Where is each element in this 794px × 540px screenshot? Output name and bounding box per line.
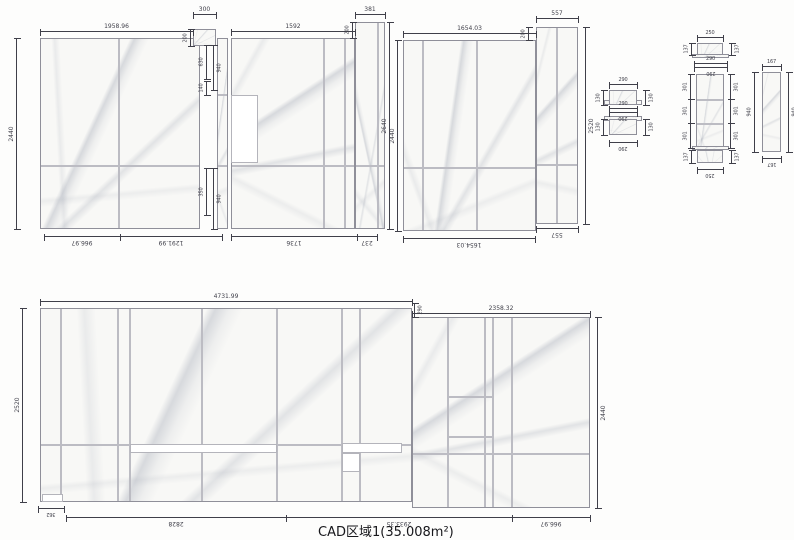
dim-panel3-strip-width: 557 (536, 18, 578, 19)
dim-detailB-flange-width1: 290 (694, 63, 727, 64)
detailB-column[interactable] (696, 74, 724, 148)
dim-detailB-seg-r2: 301 (730, 99, 731, 123)
dim-label: 2440 (9, 126, 15, 141)
dim-label: 290 (419, 306, 424, 315)
dim-panel3-width: 1654.03 (403, 33, 536, 34)
dim-panel2-height-outer: 2640 (389, 22, 390, 229)
panel3-slab[interactable] (403, 40, 536, 231)
dim-label: 1291.99 (159, 239, 184, 245)
dim-detailA-height-r2: 130 (645, 119, 646, 135)
dim-detailB-seg-l1: 301 (690, 74, 691, 99)
dim-bigpanel-height-right: 2440 (597, 317, 598, 508)
panel2-strip-joint-horizontal (356, 165, 384, 167)
dim-label: 2358.32 (489, 306, 514, 312)
bigpanel-joint-v2 (117, 309, 119, 501)
dim-label: 557 (551, 231, 562, 237)
detailB-joint-b (697, 123, 723, 125)
bigpanel-right-joint-h1 (413, 453, 589, 455)
dim-bigpanel-bottom-b: 2933.35 (286, 517, 512, 518)
dim-label: 381 (364, 7, 375, 13)
dim-label: 301 (684, 131, 689, 140)
detailB-cap-bottom[interactable] (697, 150, 723, 163)
dim-label: 300 (199, 7, 210, 13)
dim-detailC-width-top: 167 (762, 66, 781, 67)
dim-gap-top-a: 630 (206, 45, 207, 79)
dim-label: 290 (619, 145, 628, 150)
panel3-strip-joint-vertical (556, 28, 558, 223)
dim-label: 167 (767, 60, 776, 65)
panel2-joint-vertical-b (344, 39, 346, 228)
bigpanel-notch-piece (42, 494, 63, 502)
dim-label: 301 (684, 107, 689, 116)
dim-panel3-strip-height: 200 (528, 27, 529, 40)
panel3-strip-joint-horizontal (537, 164, 577, 166)
bigpanel-right-joint-v1 (447, 318, 449, 507)
bigpanel-joint-v5 (276, 309, 278, 501)
dim-panel1-bottom-right: 1291.99 (120, 236, 222, 237)
bigpanel-main-slab[interactable] (40, 308, 412, 502)
dim-label: 940 (218, 194, 223, 203)
dim-label: 290 (706, 70, 715, 75)
dim-gap-mid: 140 (206, 81, 207, 95)
dim-panel2-bottom-left: 1736 (231, 236, 357, 237)
detailB-joint-a (697, 99, 723, 101)
dim-label: 200 (522, 29, 527, 38)
bigpanel-joint-v7 (359, 309, 361, 501)
dim-label: 130 (597, 93, 602, 102)
dim-detailB-flange-width2: 290 (694, 67, 727, 68)
dim-label: 250 (706, 31, 715, 36)
dim-label: 4731.99 (214, 294, 239, 300)
dim-label: 362 (47, 511, 56, 516)
dim-label: 130 (650, 93, 655, 102)
dim-detailA-height-l2: 130 (603, 119, 604, 135)
dim-panel1-bottom-left: 966.97 (44, 236, 120, 237)
dim-bigpanel-width-left: 4731.99 (40, 301, 412, 302)
dim-label: 301 (684, 82, 689, 91)
dim-detailC-height-r: 940 (788, 72, 789, 152)
panel2-cutout (231, 95, 258, 163)
dim-label: 200 (184, 33, 189, 42)
detailA-cap-bottom[interactable] (609, 119, 637, 135)
bigpanel-cutout-band-a (130, 444, 277, 453)
dim-detailB-seg-l3: 301 (690, 123, 691, 148)
dim-detailA-width-bottom: 290 (609, 142, 637, 143)
dim-detailA-height-l1: 130 (603, 90, 604, 105)
panel1-notch-piece[interactable] (193, 29, 216, 46)
dim-label: 301 (735, 107, 740, 116)
dim-detailA-width-mid1: 290 (609, 108, 637, 109)
dim-panel2-width: 1592 (231, 31, 355, 32)
dim-gap-bottom-a: 350 (206, 168, 207, 215)
panel3-joint-vertical-b (476, 41, 478, 230)
dim-panel1-width: 1958.96 (40, 31, 193, 32)
dim-detailB-cap-height-bl: 137 (691, 150, 692, 163)
dim-bigpanel-bottom-c: 966.97 (512, 517, 590, 518)
dim-panel2-strip-height: 200 (352, 22, 353, 38)
dim-detailB-cap-height-br: 137 (731, 150, 732, 163)
dim-label: 290 (619, 78, 628, 83)
dim-label: 137 (736, 45, 741, 54)
dim-label: 290 (619, 115, 628, 120)
dim-label: 966.97 (72, 239, 93, 245)
bigpanel-right-joint-v2 (484, 318, 486, 507)
dim-label: 130 (650, 123, 655, 132)
bigpanel-joint-v3 (129, 309, 131, 501)
dim-label: 2640 (382, 118, 388, 133)
dim-bigpanel-width-right: 2358.32 (412, 313, 590, 314)
dim-label: 350 (200, 187, 205, 196)
panel2-strip-joint-vertical (377, 23, 379, 228)
dim-label: 130 (597, 123, 602, 132)
bigpanel-right-joint-v3 (492, 318, 494, 507)
panel1-strip-joint-a (218, 94, 227, 96)
dim-panel3-height-left: 2440 (397, 40, 398, 231)
dim-gap-bottom-b: 940 (213, 168, 214, 229)
dim-detailA-height-r1: 130 (645, 90, 646, 105)
dim-detailB-cap-height-tl: 137 (691, 43, 692, 55)
bigpanel-right-joint-h2 (447, 396, 494, 398)
dim-label: 137 (685, 152, 690, 161)
dim-detailB-seg-l2: 301 (690, 99, 691, 123)
dim-detailC-height-l: 940 (754, 72, 755, 152)
dim-label: 1736 (286, 239, 301, 245)
dim-panel1-notch-width: 300 (193, 14, 216, 15)
dim-label: 557 (551, 11, 562, 17)
dim-bigpanel-bottom-a: 2828 (66, 517, 286, 518)
dim-label: 237 (361, 239, 372, 245)
dim-label: 1654.03 (457, 26, 482, 32)
bigpanel-cutout-band-b (342, 443, 402, 453)
panel2-joint-horizontal (232, 165, 354, 167)
dim-bigpanel-step: 290 (414, 303, 415, 317)
dim-detailB-seg-r1: 301 (730, 74, 731, 99)
panel1-joint-vertical (118, 39, 120, 228)
dim-bigpanel-notch: 362 (38, 508, 64, 509)
bigpanel-right-slab[interactable] (412, 317, 590, 508)
dim-label: 200 (346, 26, 351, 35)
dim-label: 2440 (390, 128, 396, 143)
dim-label: 140 (200, 84, 205, 93)
panel2-joint-vertical-a (323, 39, 325, 228)
dim-detailA-width-mid2: 290 (609, 112, 637, 113)
dim-detailA-width-top: 290 (609, 84, 637, 85)
dim-label: 137 (736, 152, 741, 161)
bigpanel-joint-v4 (201, 309, 203, 501)
dim-detailC-width-bottom: 167 (762, 158, 781, 159)
dim-label: 290 (706, 57, 715, 62)
panel3-joint-horizontal (404, 167, 535, 169)
dim-panel1-notch-height: 200 (190, 29, 191, 46)
dim-detailB-cap-width: 250 (697, 37, 723, 38)
dim-label: 250 (706, 172, 715, 177)
dim-label: 2520 (15, 397, 21, 412)
dim-label: 1592 (285, 24, 300, 30)
dim-detailB-cap-width-bottom: 250 (697, 169, 723, 170)
bigpanel-cutout-box (342, 453, 360, 472)
dim-gap-top-b: 940 (213, 45, 214, 90)
panel1-strip-joint-b (218, 165, 227, 167)
dim-label: 1654.03 (457, 241, 482, 247)
detailB-cap-top[interactable] (697, 43, 723, 55)
dim-label: 301 (735, 131, 740, 140)
dim-label: 966.97 (541, 520, 562, 526)
dim-panel2-bottom-right: 237 (357, 236, 377, 237)
dim-label: 630 (200, 58, 205, 67)
bigpanel-right-joint-h3 (447, 436, 494, 438)
cad-drawing-canvas: 1958.96 300 200 2440 966.97 1291.99 630 … (0, 0, 794, 540)
dim-label: 2828 (168, 520, 183, 526)
panel1-joint-horizontal (41, 165, 199, 167)
dim-label: 301 (735, 82, 740, 91)
panel3-joint-vertical-a (422, 41, 424, 230)
area-title: CAD区域1(35.008m²) (318, 521, 454, 540)
bigpanel-right-joint-v4 (511, 318, 513, 507)
dim-label: 940 (218, 63, 223, 72)
dim-label: 137 (685, 45, 690, 54)
dim-detailB-cap-height-tr: 137 (731, 43, 732, 55)
dim-label: 940 (748, 108, 753, 117)
dim-panel1-height: 2440 (16, 38, 17, 229)
dim-panel3-bottom: 1654.03 (403, 238, 535, 239)
dim-label: 1958.96 (104, 24, 129, 30)
dim-panel2-strip-width: 381 (355, 14, 385, 15)
panel1-slab[interactable] (40, 38, 200, 229)
dim-detailB-seg-r3: 301 (730, 123, 731, 148)
dim-panel3-height-right: 2520 (585, 27, 586, 224)
dim-label: 2440 (601, 405, 607, 420)
dim-label: 167 (767, 161, 776, 166)
bigpanel-joint-v1 (60, 309, 62, 501)
detailC-strip[interactable] (762, 72, 781, 152)
panel3-strip-piece[interactable] (536, 27, 578, 224)
dim-bigpanel-height-left: 2520 (22, 308, 23, 502)
dim-label: 2520 (589, 118, 595, 133)
bigpanel-joint-v6 (341, 309, 343, 501)
dim-panel3-bottom-strip: 557 (536, 228, 578, 229)
dim-label: 290 (619, 102, 628, 107)
